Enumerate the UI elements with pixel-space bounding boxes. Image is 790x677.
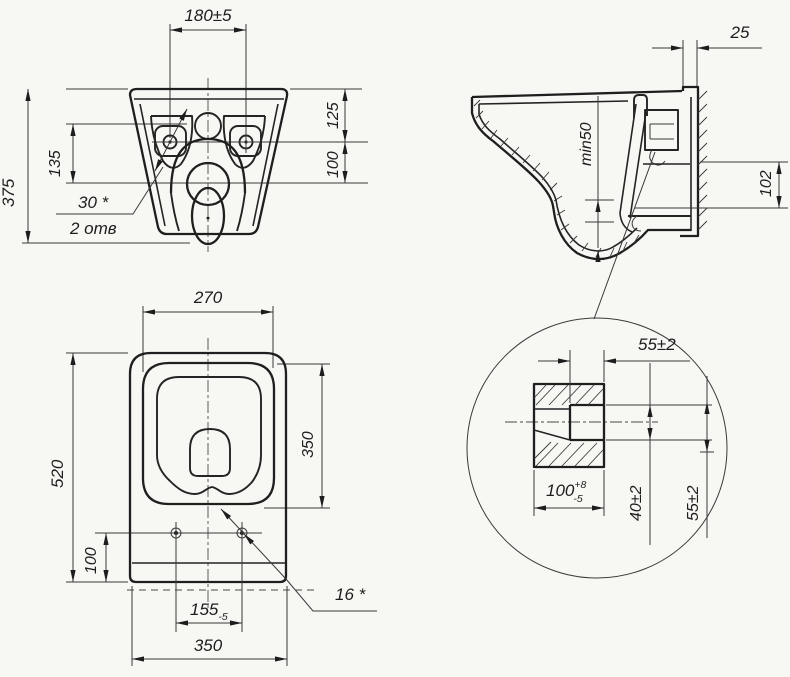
note-hole-count: 2 отв [69,219,117,238]
dim-100-tol-lower: -5 [573,493,582,505]
plan-drain-opening [190,429,230,476]
dim-seat-width: 270 [193,288,223,307]
side-wall-plate [680,87,698,236]
detail-40-extension-lines [606,405,712,440]
detail-hatch-bottom [534,442,603,466]
dim-socket-depth: 55±2 [638,335,676,354]
front-inner-taper-lines [140,104,278,226]
drawing-page: 180±5 375 135 125 100 30 * 2 отв 25 [0,0,790,677]
note-hole-dim: 30 * [78,193,110,212]
dim-outlet-height: 102 [758,170,775,197]
dim-overall-width: 350 [194,636,223,655]
dim-bowl-length: 350 [300,431,317,458]
side-rim-inner-line [479,101,628,104]
side-25-extension-lines [683,40,697,88]
dim-100-value: 100 [546,481,575,500]
side-section-view: 25 min50 102 [472,23,788,319]
front-view: 180±5 375 135 125 100 30 * 2 отв [0,6,368,252]
detail-55r-arrow-top [704,402,709,414]
outlet-detail-view: 55±2 100+8-5 40±2 55±2 [467,318,727,578]
side-shell-hatching [474,100,639,257]
detail-55top-extension-lines [570,350,604,403]
side-wall-hatching [698,91,707,230]
dim-outer-height: 55±2 [685,485,702,521]
min50-arrow-upper [595,200,600,212]
dim-hole-spacing: 180±5 [184,6,232,25]
dim-hole-edge-offset: 100 [83,547,100,574]
dim-plate-depth: 25 [730,23,750,42]
side-top-edge [472,91,682,97]
side-outer-profile [472,97,691,259]
dim-bore-height: 40±2 [628,485,645,521]
detail-40-arrow-top [647,405,652,417]
front-trap-center-dot [207,217,210,220]
detail-circle [467,318,727,578]
dim-hole-drop: 135 [47,150,64,177]
detail-socket [570,405,604,440]
dim-overall-length: 520 [48,459,67,488]
side-bracket-hook [650,150,665,165]
dim-100-tol-upper: +8 [574,479,586,491]
side-boss-socket [650,124,674,139]
dim-hole-spacing-plan: 155-5 [190,600,228,623]
note-hole-diameter: 16 * [335,585,367,604]
dim-overall-height: 375 [0,178,18,207]
dim-hole-to-rim: 100 [325,151,342,178]
dim-top-to-hole: 125 [325,102,342,129]
detail-55r-arrow-bottom [704,440,709,452]
dim-155-tolerance: -5 [218,611,227,623]
detail-bore-lines [534,409,570,440]
plan-seat-ring [143,363,274,504]
technical-drawing: 180±5 375 135 125 100 30 * 2 отв 25 [0,0,790,677]
plan-view: 270 520 350 100 155-5 350 16 * [48,288,377,666]
dim-spigot-length: 100+8-5 [546,479,587,505]
detail-hatch-top [534,384,603,405]
dim-155-value: 155 [190,600,219,619]
front-body-outline [130,89,287,234]
detail-40-arrow-bottom [647,428,652,440]
dim-water-seal: min50 [578,122,595,166]
